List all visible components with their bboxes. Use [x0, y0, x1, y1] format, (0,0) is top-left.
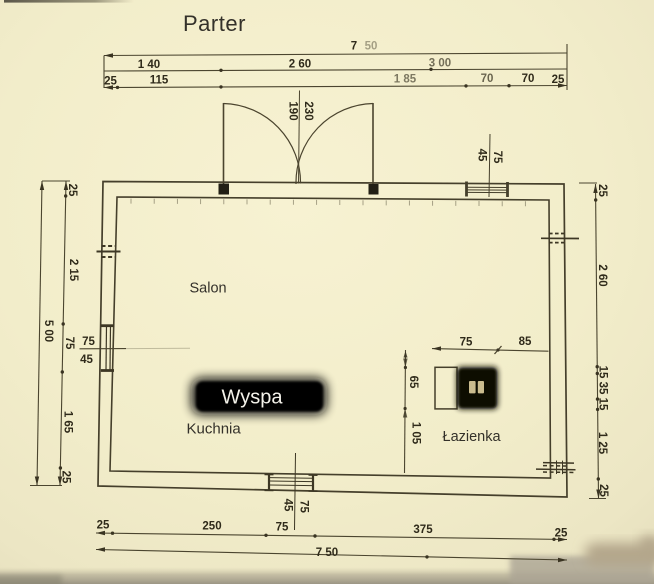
- svg-text:75: 75: [63, 337, 75, 350]
- svg-text:70: 70: [481, 73, 494, 85]
- svg-text:25: 25: [552, 74, 565, 86]
- svg-text:Salon: Salon: [190, 281, 227, 297]
- svg-text:2 15: 2 15: [67, 259, 79, 282]
- svg-text:75: 75: [491, 151, 503, 164]
- svg-text:25: 25: [104, 76, 117, 88]
- svg-text:25: 25: [60, 471, 72, 484]
- svg-text:45: 45: [282, 499, 294, 512]
- svg-text:85: 85: [519, 336, 532, 348]
- svg-text:1 25: 1 25: [596, 432, 608, 455]
- svg-text:70: 70: [522, 73, 535, 85]
- svg-text:75: 75: [276, 522, 289, 534]
- svg-text:50: 50: [365, 41, 378, 53]
- svg-text:25: 25: [97, 520, 110, 532]
- svg-text:5 00: 5 00: [42, 320, 54, 342]
- svg-text:1 85: 1 85: [394, 74, 417, 86]
- svg-text:Parter: Parter: [183, 11, 246, 36]
- svg-text:75: 75: [298, 500, 310, 513]
- svg-text:1 65: 1 65: [62, 411, 74, 434]
- svg-text:190: 190: [287, 101, 299, 120]
- svg-text:45: 45: [476, 149, 488, 162]
- svg-text:250: 250: [202, 521, 221, 533]
- svg-text:Łazienka: Łazienka: [443, 429, 502, 445]
- svg-text:3 00: 3 00: [429, 58, 451, 70]
- svg-text:1 05: 1 05: [410, 422, 422, 445]
- svg-text:7 50: 7 50: [316, 547, 338, 559]
- svg-text:25: 25: [597, 484, 609, 497]
- svg-text:45: 45: [80, 354, 93, 366]
- svg-text:7: 7: [351, 41, 357, 53]
- svg-text:25: 25: [555, 528, 568, 540]
- svg-text:115: 115: [150, 75, 169, 87]
- svg-text:375: 375: [413, 524, 433, 536]
- svg-text:25: 25: [596, 184, 608, 197]
- svg-text:Kuchnia: Kuchnia: [187, 421, 242, 438]
- svg-text:75: 75: [460, 337, 473, 349]
- svg-text:75: 75: [82, 336, 95, 348]
- svg-text:2 60: 2 60: [596, 264, 608, 286]
- svg-text:15 35 15: 15 35 15: [597, 366, 609, 411]
- svg-text:25: 25: [66, 184, 78, 197]
- svg-text:2 60: 2 60: [289, 59, 311, 71]
- svg-text:Wyspa: Wyspa: [222, 387, 284, 409]
- svg-text:1 40: 1 40: [138, 59, 160, 71]
- svg-text:230: 230: [302, 101, 314, 120]
- svg-text:65: 65: [407, 376, 419, 389]
